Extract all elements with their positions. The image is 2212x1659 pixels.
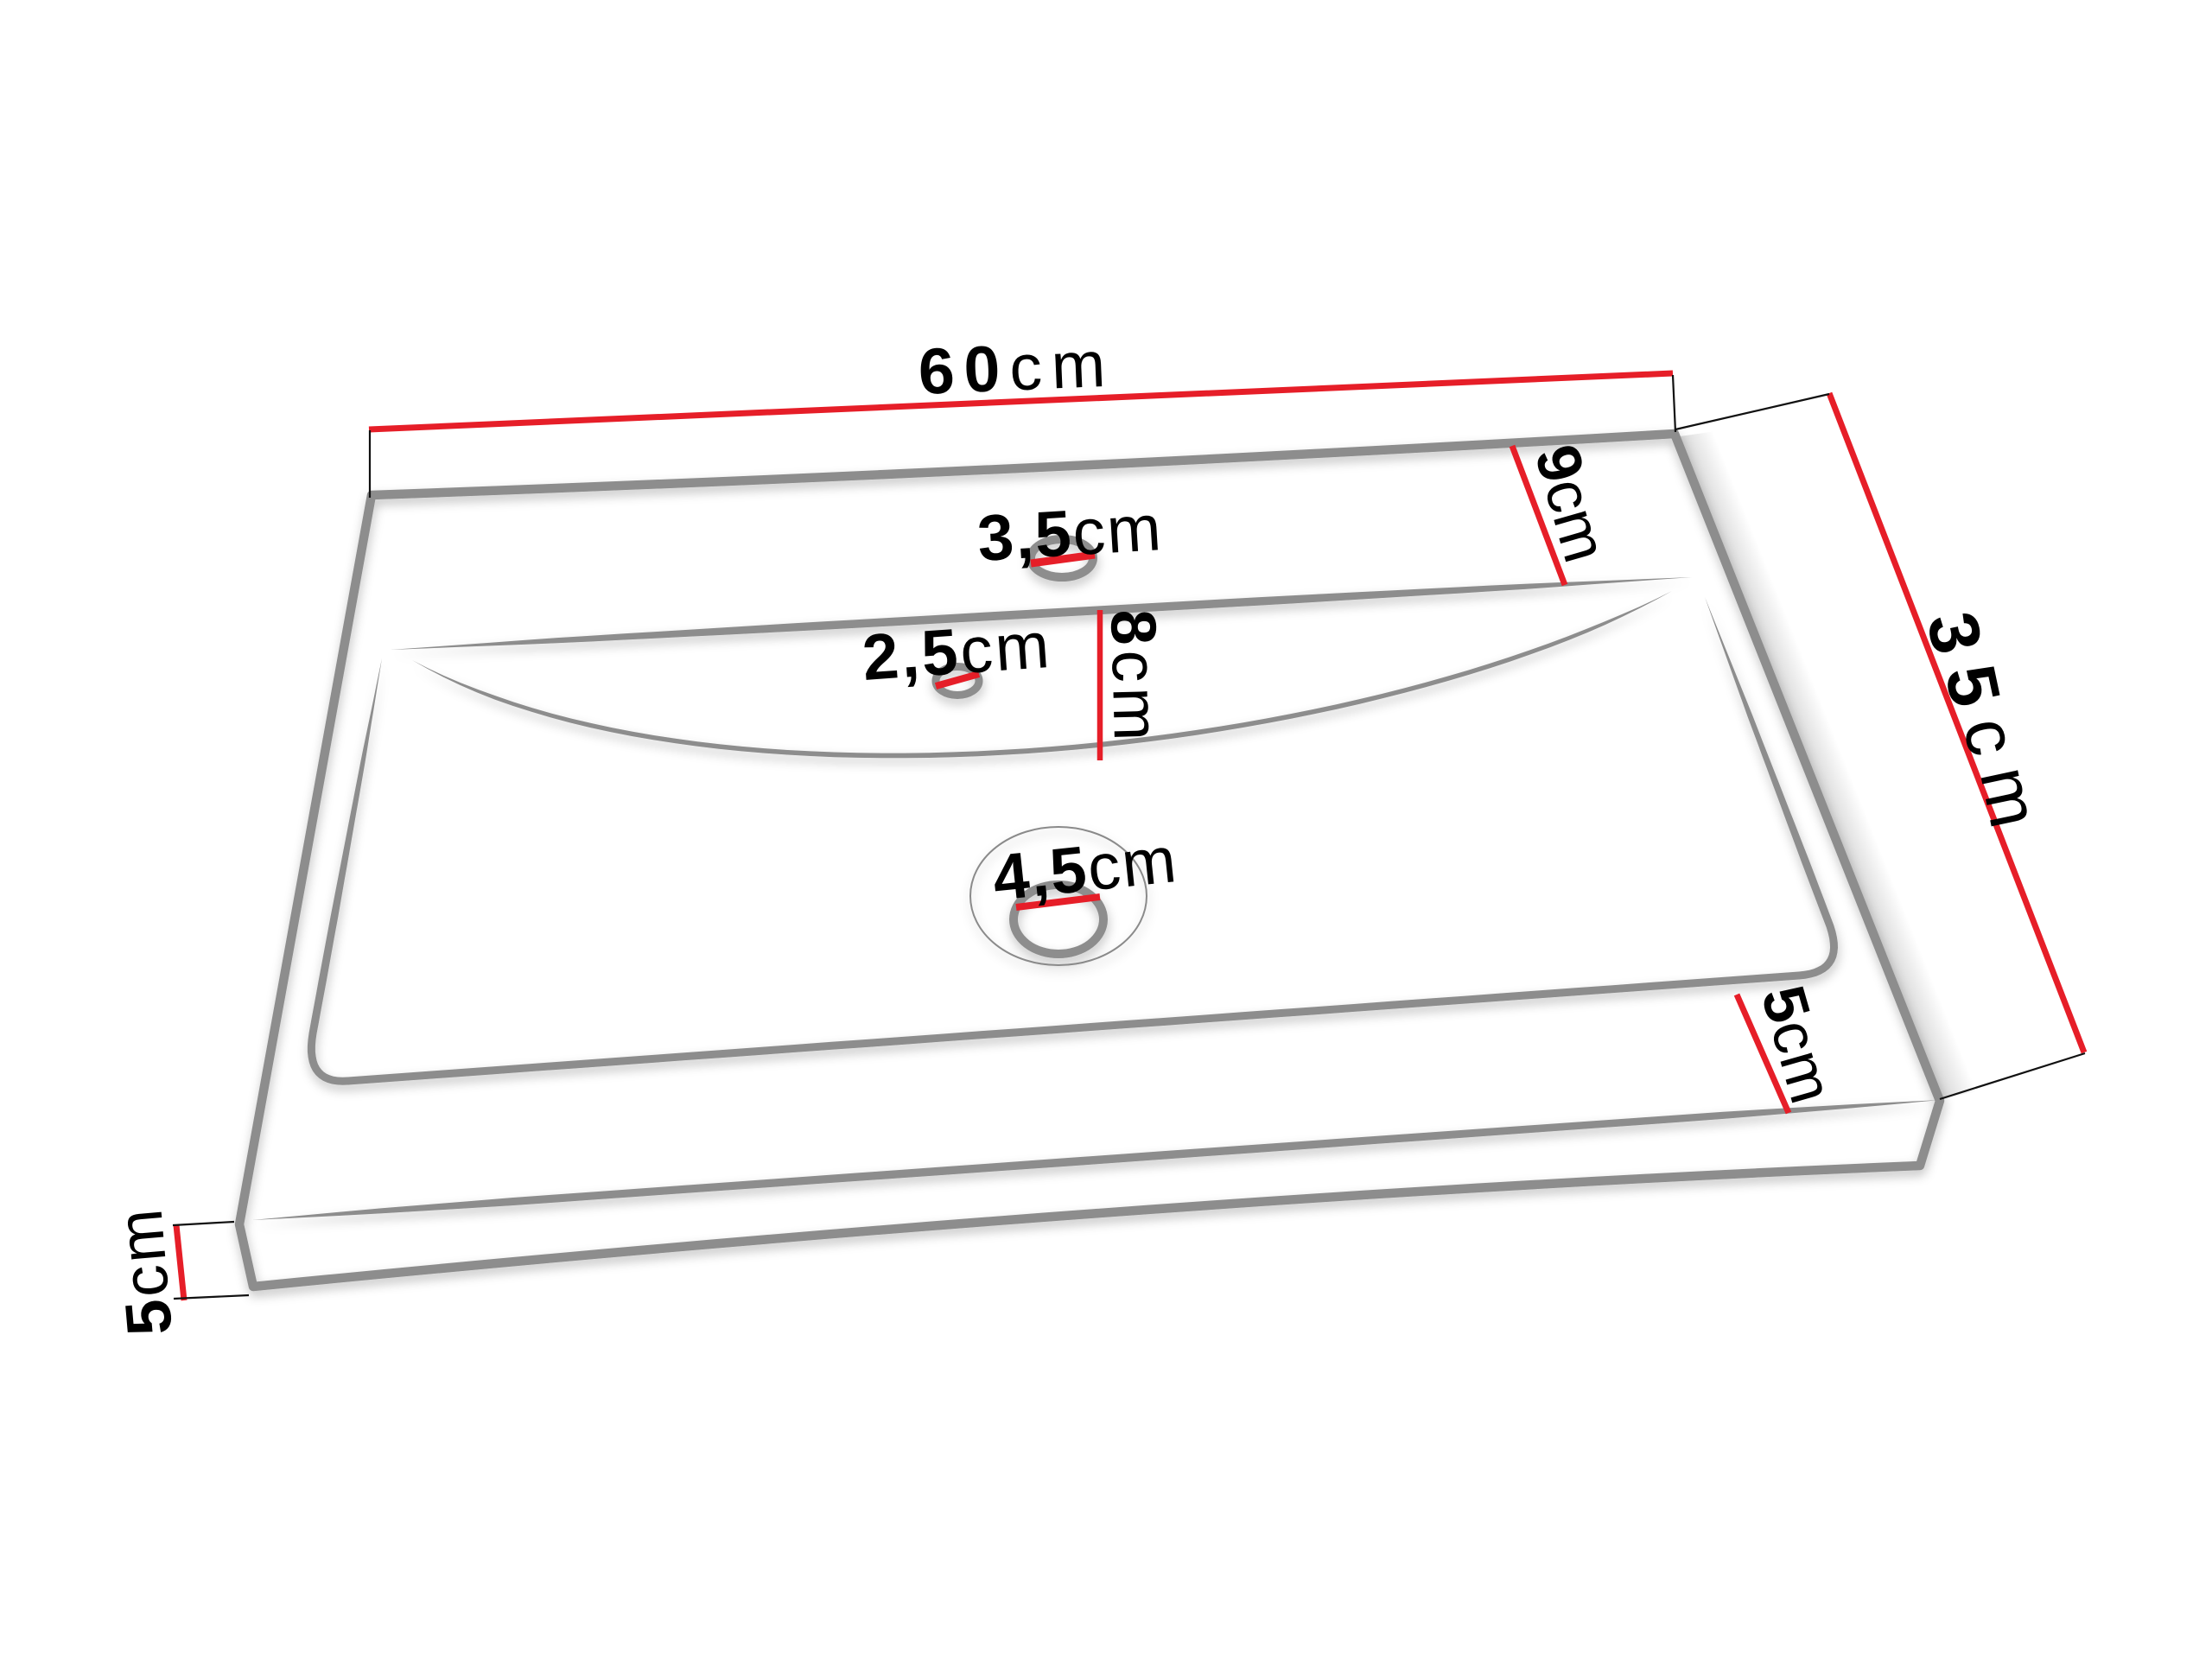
svg-text:8cm: 8cm [1097,608,1173,747]
svg-text:3,5cm: 3,5cm [976,491,1165,575]
svg-text:35cm: 35cm [1903,596,2066,859]
svg-text:60cm: 60cm [917,327,1116,408]
svg-text:4,5cm: 4,5cm [989,823,1181,914]
svg-text:5cm: 5cm [103,1204,186,1338]
svg-text:2,5cm: 2,5cm [860,608,1054,694]
svg-text:9cm: 9cm [1522,437,1620,569]
svg-text:5cm: 5cm [1748,979,1847,1112]
